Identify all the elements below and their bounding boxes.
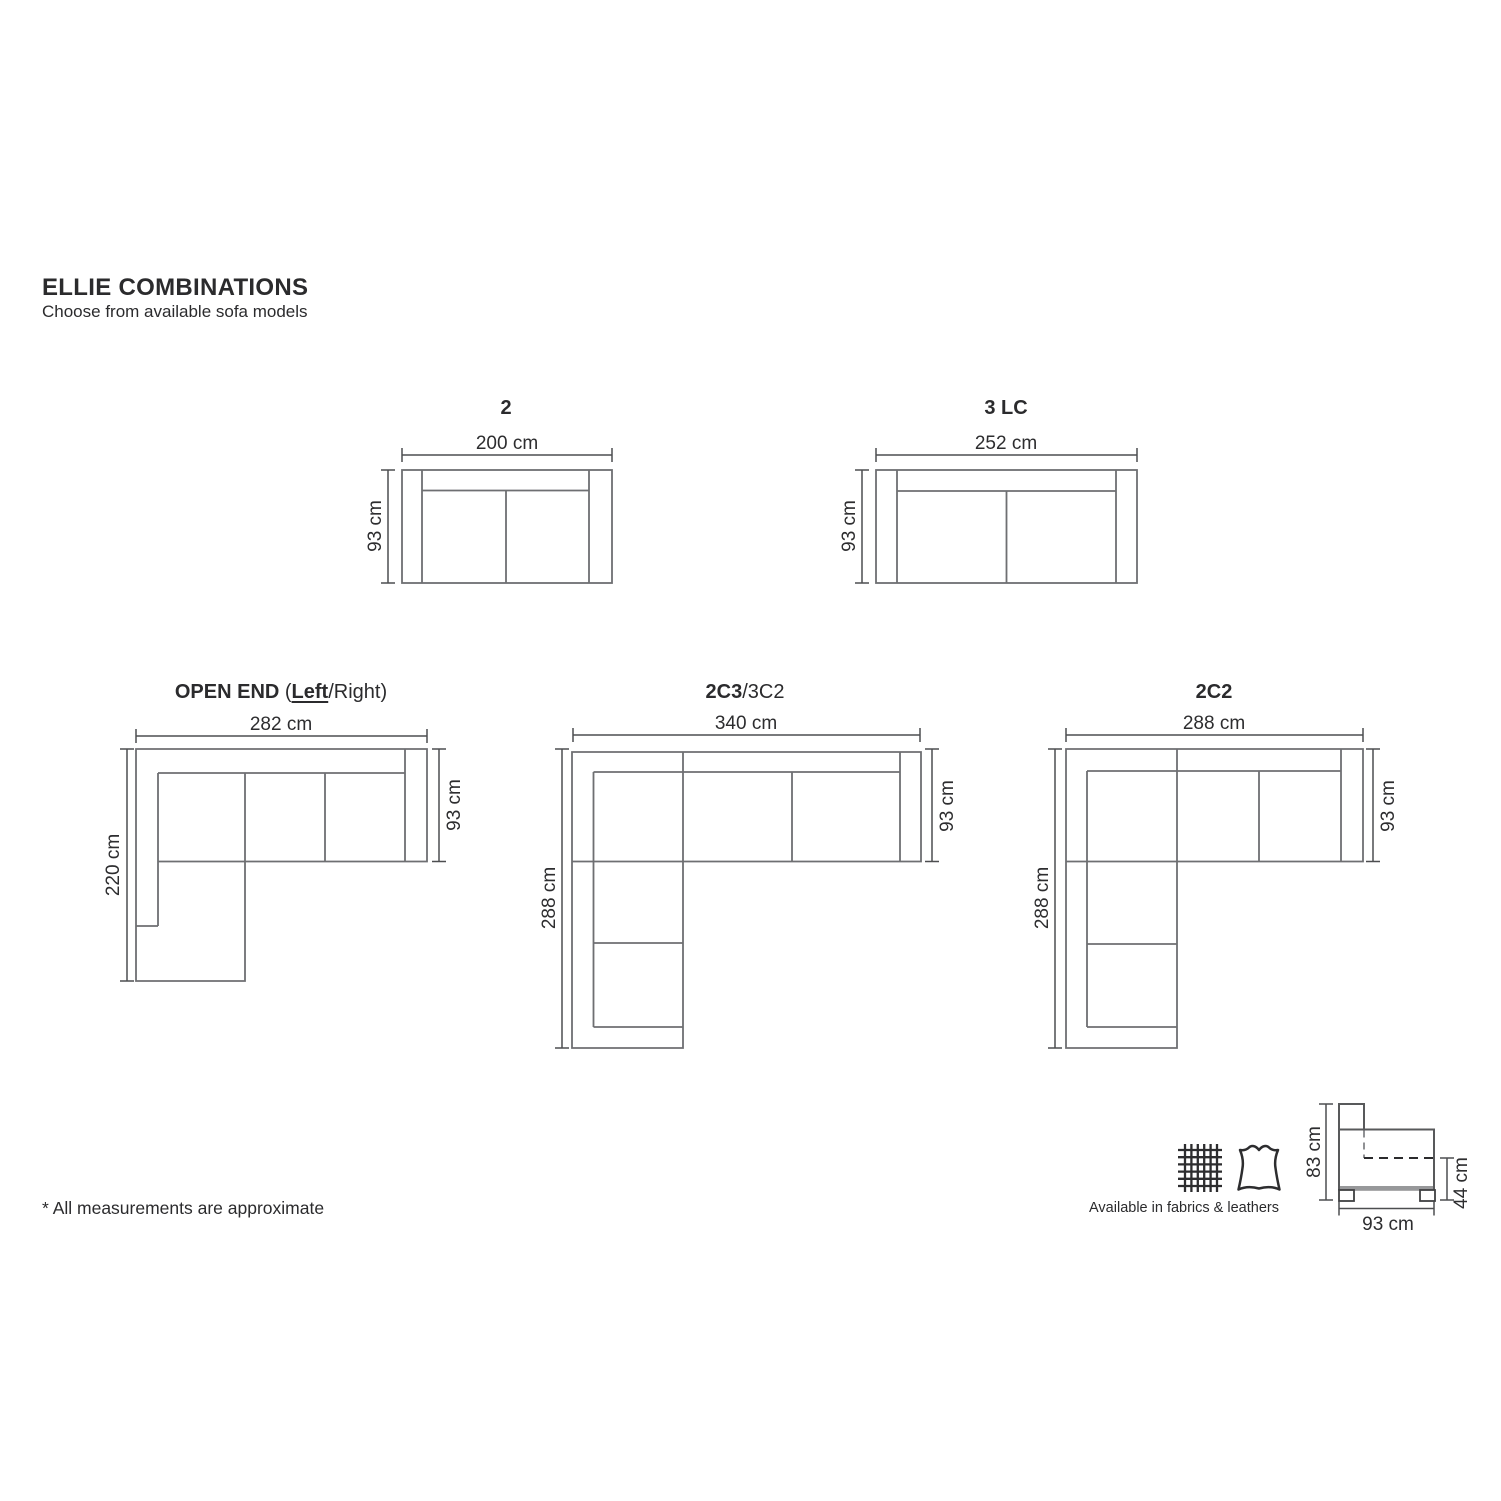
chair-back-foot (1420, 1190, 1435, 1201)
2c3-depth-label: 93 cm (937, 780, 958, 832)
2c2-width-dimension: 288 cm (1066, 713, 1363, 742)
model-2-width-label: 200 cm (476, 433, 538, 454)
side-view-diagram: 83 cm 44 cm 93 cm (1300, 1095, 1475, 1240)
side-view-height-dimension: 83 cm (1304, 1104, 1333, 1200)
2c3-width-dimension: 340 cm (573, 713, 920, 742)
model-3lc-title: 3 LC (984, 397, 1027, 420)
open-end-depth-label: 93 cm (444, 779, 465, 831)
model-2c3-name: 2C3 (706, 681, 743, 703)
page-subtitle: Choose from available sofa models (42, 302, 308, 322)
open-end-width-dimension: 282 cm (136, 714, 427, 743)
model-open-end-left: Left (292, 681, 329, 703)
model-3lc-width-label: 252 cm (975, 433, 1037, 454)
2c2-depth-dimension: 93 cm (1366, 749, 1399, 862)
side-view-depth-dimension: 93 cm (1339, 1202, 1434, 1236)
model-2c3-rest: /3C2 (742, 681, 784, 703)
model-2-width-dimension: 200 cm (402, 433, 612, 462)
model-3lc-name: 3 LC (984, 397, 1027, 419)
footnote: * All measurements are approximate (42, 1198, 324, 1219)
chair-body (1339, 1130, 1434, 1190)
side-view-seat-height-dimension: 44 cm (1440, 1157, 1472, 1209)
spec-sheet-page: { "header": { "title": "ELLIE COMBINATIO… (0, 0, 1501, 1501)
side-view-height-label: 83 cm (1304, 1126, 1325, 1178)
side-view-chair-outline (1339, 1104, 1435, 1201)
chair-backrest (1339, 1104, 1364, 1130)
model-2c3-title: 2C3/3C2 (706, 681, 785, 704)
open-end-depth-dimension: 93 cm (432, 749, 465, 862)
2c3-length-dimension: 288 cm (539, 749, 569, 1048)
2c2-sofa-outline (1066, 749, 1363, 1048)
model-3lc-diagram: 252 cm 93 cm (835, 425, 1155, 600)
model-2-depth-dimension: 93 cm (365, 470, 395, 583)
open-end-sofa-outline (136, 749, 427, 981)
2c2-depth-label: 93 cm (1378, 780, 1399, 832)
open-end-width-label: 282 cm (250, 714, 312, 735)
2c3-length-label: 288 cm (539, 867, 560, 929)
2c3-width-label: 340 cm (715, 713, 777, 734)
2c2-length-label: 288 cm (1032, 867, 1053, 929)
model-3lc-depth-label: 93 cm (839, 500, 860, 552)
header: ELLIE COMBINATIONS Choose from available… (42, 274, 308, 322)
model-2-title: 2 (500, 397, 511, 420)
side-view-seat-height-label: 44 cm (1451, 1157, 1472, 1209)
model-2c2-name: 2C2 (1196, 681, 1233, 703)
model-3lc-depth-dimension: 93 cm (839, 470, 869, 583)
page-title: ELLIE COMBINATIONS (42, 274, 308, 302)
model-2-sofa-outline (402, 470, 612, 583)
chair-front-foot (1339, 1190, 1354, 1201)
model-2c2-title: 2C2 (1196, 681, 1233, 704)
model-2-depth-label: 93 cm (365, 500, 386, 552)
model-2-name: 2 (500, 397, 511, 419)
model-open-end-paren: ( (279, 681, 291, 703)
model-open-end-name: OPEN END (175, 681, 279, 703)
open-end-length-dimension: 220 cm (103, 749, 134, 981)
model-3lc-sofa-outline (876, 470, 1137, 583)
model-2c3-diagram: 340 cm 288 cm 93 cm (530, 710, 962, 1062)
2c2-width-label: 288 cm (1183, 713, 1245, 734)
availability-label: Available in fabrics & leathers (1089, 1200, 1279, 1216)
model-2-diagram: 200 cm 93 cm (360, 425, 630, 600)
model-open-end-rest: /Right) (328, 681, 387, 703)
fabric-swatch-icon (1176, 1142, 1224, 1194)
2c3-depth-dimension: 93 cm (925, 749, 958, 862)
2c3-sofa-outline (572, 752, 921, 1048)
2c2-length-dimension: 288 cm (1032, 749, 1062, 1048)
leather-hide-icon (1236, 1143, 1282, 1195)
model-open-end-diagram: 282 cm 220 cm 93 cm (95, 710, 480, 1005)
open-end-length-label: 220 cm (103, 834, 124, 896)
model-3lc-width-dimension: 252 cm (876, 433, 1137, 462)
model-2c2-diagram: 288 cm 288 cm 93 cm (1025, 710, 1465, 1062)
model-open-end-title: OPEN END (Left/Right) (175, 681, 387, 704)
side-view-depth-label: 93 cm (1362, 1214, 1414, 1235)
